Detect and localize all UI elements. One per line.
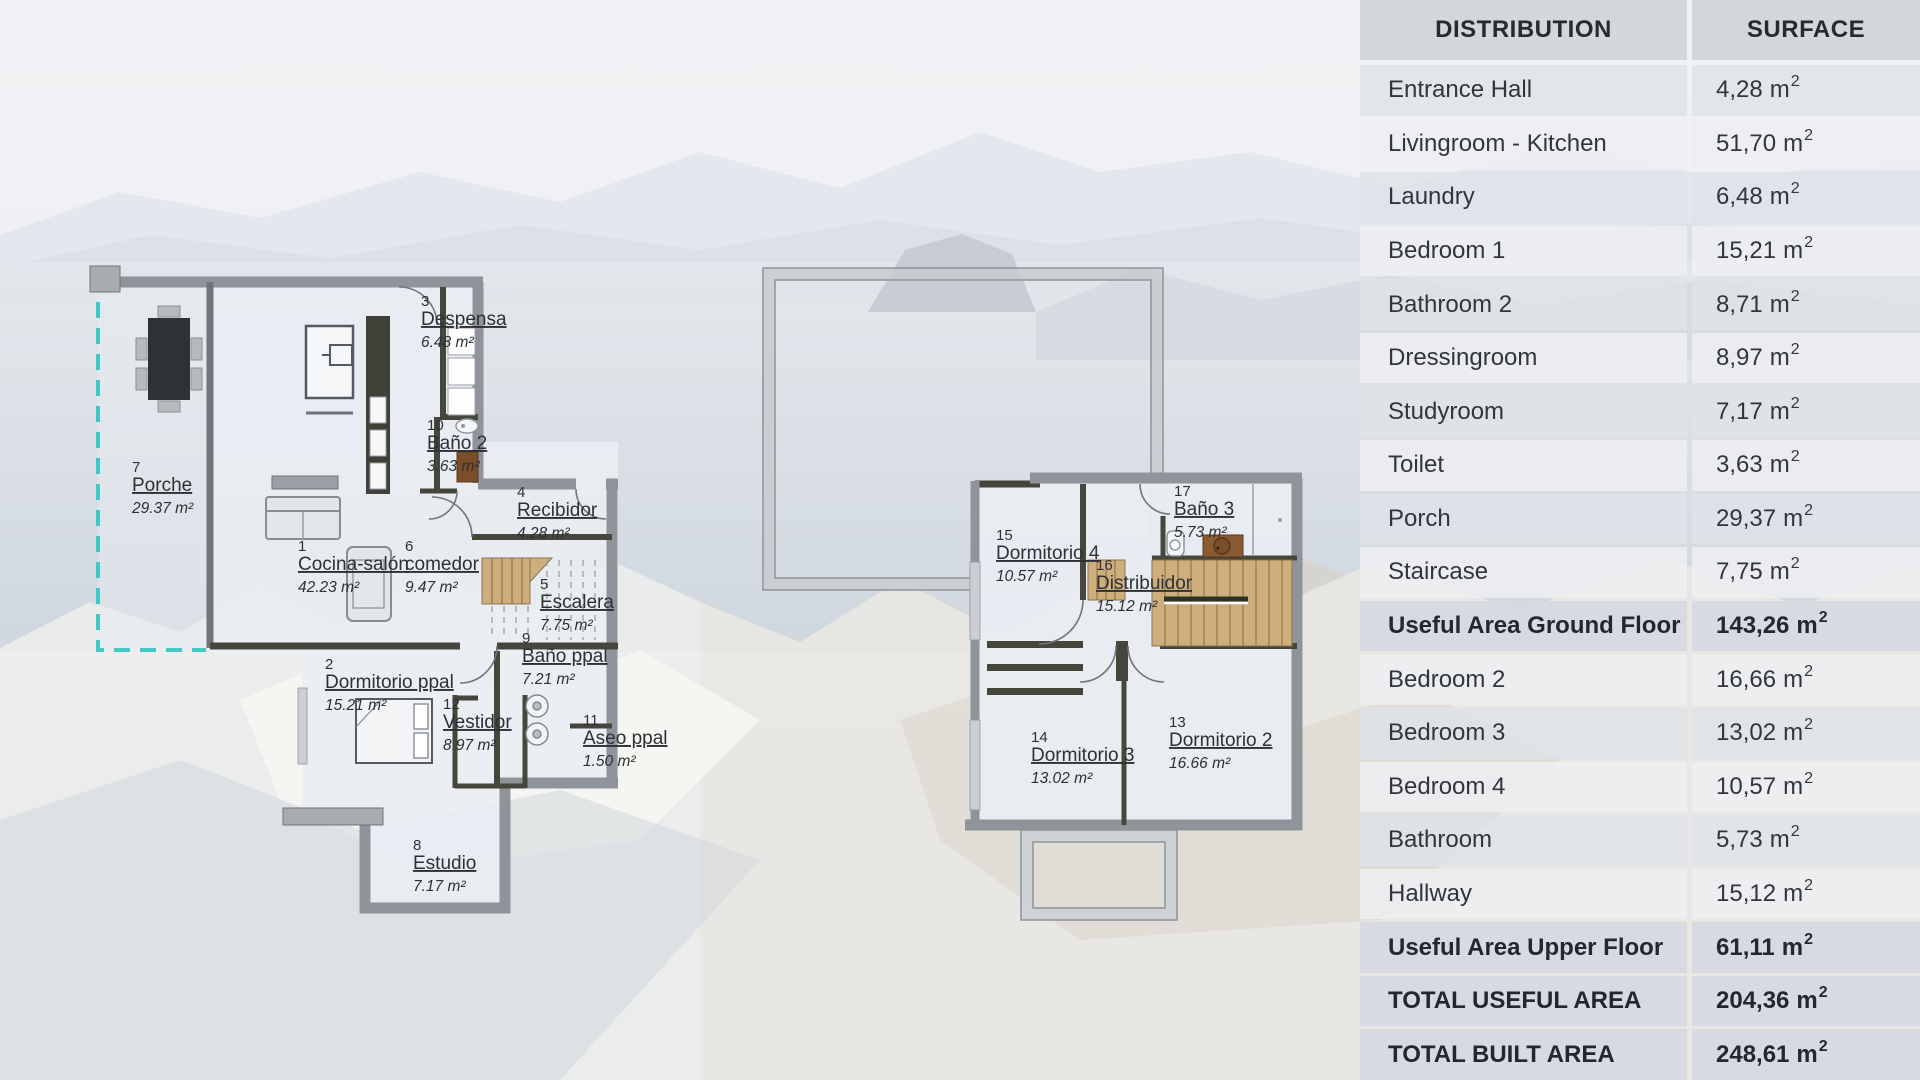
bedroom3-window	[970, 720, 980, 810]
table-header-row: DISTRIBUTION SURFACE	[1360, 0, 1920, 60]
room-name-aseoppal: Aseo ppal	[583, 728, 668, 749]
table-row: Toilet 3,63 m2	[1360, 440, 1920, 491]
room-area-dormppal: 15.21 m²	[325, 697, 387, 714]
room-number-dormppal: 2	[325, 656, 333, 673]
room-area-dorm3: 13.02 m²	[1031, 770, 1093, 787]
room-surface: 3,63 m2	[1692, 440, 1920, 491]
room-number-porche: 7	[132, 459, 140, 476]
room-surface: 5,73 m2	[1692, 815, 1920, 866]
room-surface: 204,36 m2	[1692, 976, 1920, 1027]
upper-floor-plan: 13Dormitorio 216.66 m²14Dormitorio 313.0…	[763, 268, 1302, 920]
room-number-distribuidor: 16	[1096, 557, 1113, 574]
room-label: TOTAL BUILT AREA	[1360, 1029, 1687, 1080]
room-name-estudio: Estudio	[413, 853, 476, 874]
room-name-cocina: Cocina-salón	[298, 554, 409, 575]
ground-corner-stub	[90, 266, 120, 292]
room-number-comedor: 6	[405, 538, 413, 555]
room-area-dorm2: 16.66 m²	[1169, 755, 1231, 772]
floor-plans: 1Cocina-salón42.23 m²2Dormitorio ppal15.…	[0, 0, 1360, 1080]
room-area-aseoppal: 1.50 m²	[583, 753, 636, 770]
room-label: Studyroom	[1360, 386, 1687, 437]
room-label: Laundry	[1360, 172, 1687, 223]
room-surface: 61,11 m2	[1692, 922, 1920, 973]
room-surface: 7,75 m2	[1692, 547, 1920, 598]
room-area-dorm4: 10.57 m²	[996, 568, 1058, 585]
room-surface: 15,21 m2	[1692, 226, 1920, 277]
room-number-bano2: 10	[427, 417, 444, 434]
table-row: Bedroom 2 16,66 m2	[1360, 654, 1920, 705]
table-row: Bedroom 4 10,57 m2	[1360, 762, 1920, 813]
room-name-dorm2: Dormitorio 2	[1169, 730, 1272, 751]
room-area-bano3: 5.73 m²	[1174, 524, 1227, 541]
table-row: Bathroom 2 8,71 m2	[1360, 279, 1920, 330]
room-number-estudio: 8	[413, 837, 421, 854]
room-label: Bathroom 2	[1360, 279, 1687, 330]
room-area-vestidor: 8.97 m²	[443, 737, 496, 754]
room-surface: 15,12 m2	[1692, 869, 1920, 920]
table-row: Studyroom 7,17 m2	[1360, 386, 1920, 437]
table-row: Useful Area Ground Floor 143,26 m2	[1360, 601, 1920, 652]
hall-door-stub	[1116, 641, 1128, 681]
room-surface: 4,28 m2	[1692, 65, 1920, 116]
table-row: Porch 29,37 m2	[1360, 494, 1920, 545]
room-name-distribuidor: Distribuidor	[1096, 573, 1193, 594]
table-row: Dressingroom 8,97 m2	[1360, 333, 1920, 384]
room-area-comedor: 9.47 m²	[405, 579, 458, 596]
room-label: Entrance Hall	[1360, 65, 1687, 116]
room-label: Dressingroom	[1360, 333, 1687, 384]
room-number-dorm2: 13	[1169, 714, 1186, 731]
bedroom1-window	[298, 688, 307, 764]
shower-drain	[1278, 518, 1282, 522]
room-number-bano3: 17	[1174, 483, 1191, 500]
balcony-outline	[1021, 830, 1177, 920]
room-area-estudio: 7.17 m²	[413, 878, 466, 895]
room-name-recibidor: Recibidor	[517, 500, 598, 521]
upper-floor-slab	[975, 481, 1297, 825]
table-row: Bedroom 1 15,21 m2	[1360, 226, 1920, 277]
table-row: Staircase 7,75 m2	[1360, 547, 1920, 598]
room-surface: 7,17 m2	[1692, 386, 1920, 437]
room-name-comedor: comedor	[405, 554, 480, 575]
room-number-despensa: 3	[421, 293, 429, 310]
room-name-dorm4: Dormitorio 4	[996, 543, 1100, 564]
table-row: Entrance Hall 4,28 m2	[1360, 65, 1920, 116]
room-surface: 13,02 m2	[1692, 708, 1920, 759]
column-header-distribution: DISTRIBUTION	[1360, 0, 1687, 60]
room-number-aseoppal: 11	[583, 712, 599, 729]
room-surface: 10,57 m2	[1692, 762, 1920, 813]
room-label: Staircase	[1360, 547, 1687, 598]
table-row: Laundry 6,48 m2	[1360, 172, 1920, 223]
column-header-surface: SURFACE	[1692, 0, 1920, 60]
bedroom4-window	[970, 562, 980, 640]
tv-bench	[272, 476, 338, 489]
sofa	[266, 497, 340, 539]
room-area-cocina: 42.23 m²	[298, 579, 360, 596]
room-area-distribuidor: 15.12 m²	[1096, 598, 1158, 615]
table-row: Bathroom 5,73 m2	[1360, 815, 1920, 866]
room-number-escalera: 5	[540, 576, 548, 593]
room-name-bano3: Baño 3	[1174, 499, 1234, 520]
room-surface: 29,37 m2	[1692, 494, 1920, 545]
room-surface: 6,48 m2	[1692, 172, 1920, 223]
room-label: Useful Area Ground Floor	[1360, 601, 1687, 652]
room-name-porche: Porche	[132, 475, 192, 496]
table-row: TOTAL USEFUL AREA 204,36 m2	[1360, 976, 1920, 1027]
room-name-despensa: Despensa	[421, 309, 507, 330]
room-label: Bedroom 4	[1360, 762, 1687, 813]
room-number-cocina: 1	[298, 538, 306, 555]
room-label: Bedroom 3	[1360, 708, 1687, 759]
room-label: Useful Area Upper Floor	[1360, 922, 1687, 973]
room-area-escalera: 7.75 m²	[540, 617, 593, 634]
ground-floor-plan: 1Cocina-salón42.23 m²2Dormitorio ppal15.…	[90, 266, 668, 913]
room-label: Livingroom - Kitchen	[1360, 119, 1687, 170]
room-label: Porch	[1360, 494, 1687, 545]
room-surface: 8,97 m2	[1692, 333, 1920, 384]
room-label: Bedroom 2	[1360, 654, 1687, 705]
surface-table: DISTRIBUTION SURFACE Entrance Hall 4,28 …	[1360, 0, 1920, 1080]
room-area-bano2: 3.63 m²	[427, 458, 480, 475]
screenshot-root: 1Cocina-salón42.23 m²2Dormitorio ppal15.…	[0, 0, 1920, 1080]
room-label: Hallway	[1360, 869, 1687, 920]
room-name-dormppal: Dormitorio ppal	[325, 672, 454, 693]
room-label: TOTAL USEFUL AREA	[1360, 976, 1687, 1027]
room-area-banoppal: 7.21 m²	[522, 671, 575, 688]
room-surface: 248,61 m2	[1692, 1029, 1920, 1080]
room-area-porche: 29.37 m²	[131, 500, 194, 517]
table-row: Livingroom - Kitchen 51,70 m2	[1360, 119, 1920, 170]
room-area-despensa: 6.48 m²	[421, 334, 474, 351]
table-row: Useful Area Upper Floor 61,11 m2	[1360, 922, 1920, 973]
room-name-dorm3: Dormitorio 3	[1031, 745, 1134, 766]
room-label: Toilet	[1360, 440, 1687, 491]
kitchen-units	[366, 316, 390, 494]
room-area-recibidor: 4.28 m²	[517, 525, 570, 542]
table-row: TOTAL BUILT AREA 248,61 m2	[1360, 1029, 1920, 1080]
room-label: Bathroom	[1360, 815, 1687, 866]
room-number-recibidor: 4	[517, 484, 525, 501]
room-name-escalera: Escalera	[540, 592, 614, 613]
room-number-vestidor: 12	[443, 696, 460, 713]
room-number-banoppal: 9	[522, 630, 530, 647]
room-name-bano2: Baño 2	[427, 433, 487, 454]
room-surface: 8,71 m2	[1692, 279, 1920, 330]
ground-ledge	[283, 808, 383, 825]
room-surface: 16,66 m2	[1692, 654, 1920, 705]
room-label: Bedroom 1	[1360, 226, 1687, 277]
room-name-banoppal: Baño ppal	[522, 646, 608, 667]
room-surface: 143,26 m2	[1692, 601, 1920, 652]
room-surface: 51,70 m2	[1692, 119, 1920, 170]
room-number-dorm4: 15	[996, 527, 1013, 544]
table-row: Bedroom 3 13,02 m2	[1360, 708, 1920, 759]
table-row: Hallway 15,12 m2	[1360, 869, 1920, 920]
room-name-vestidor: Vestidor	[443, 712, 512, 733]
room-number-dorm3: 14	[1031, 729, 1048, 746]
